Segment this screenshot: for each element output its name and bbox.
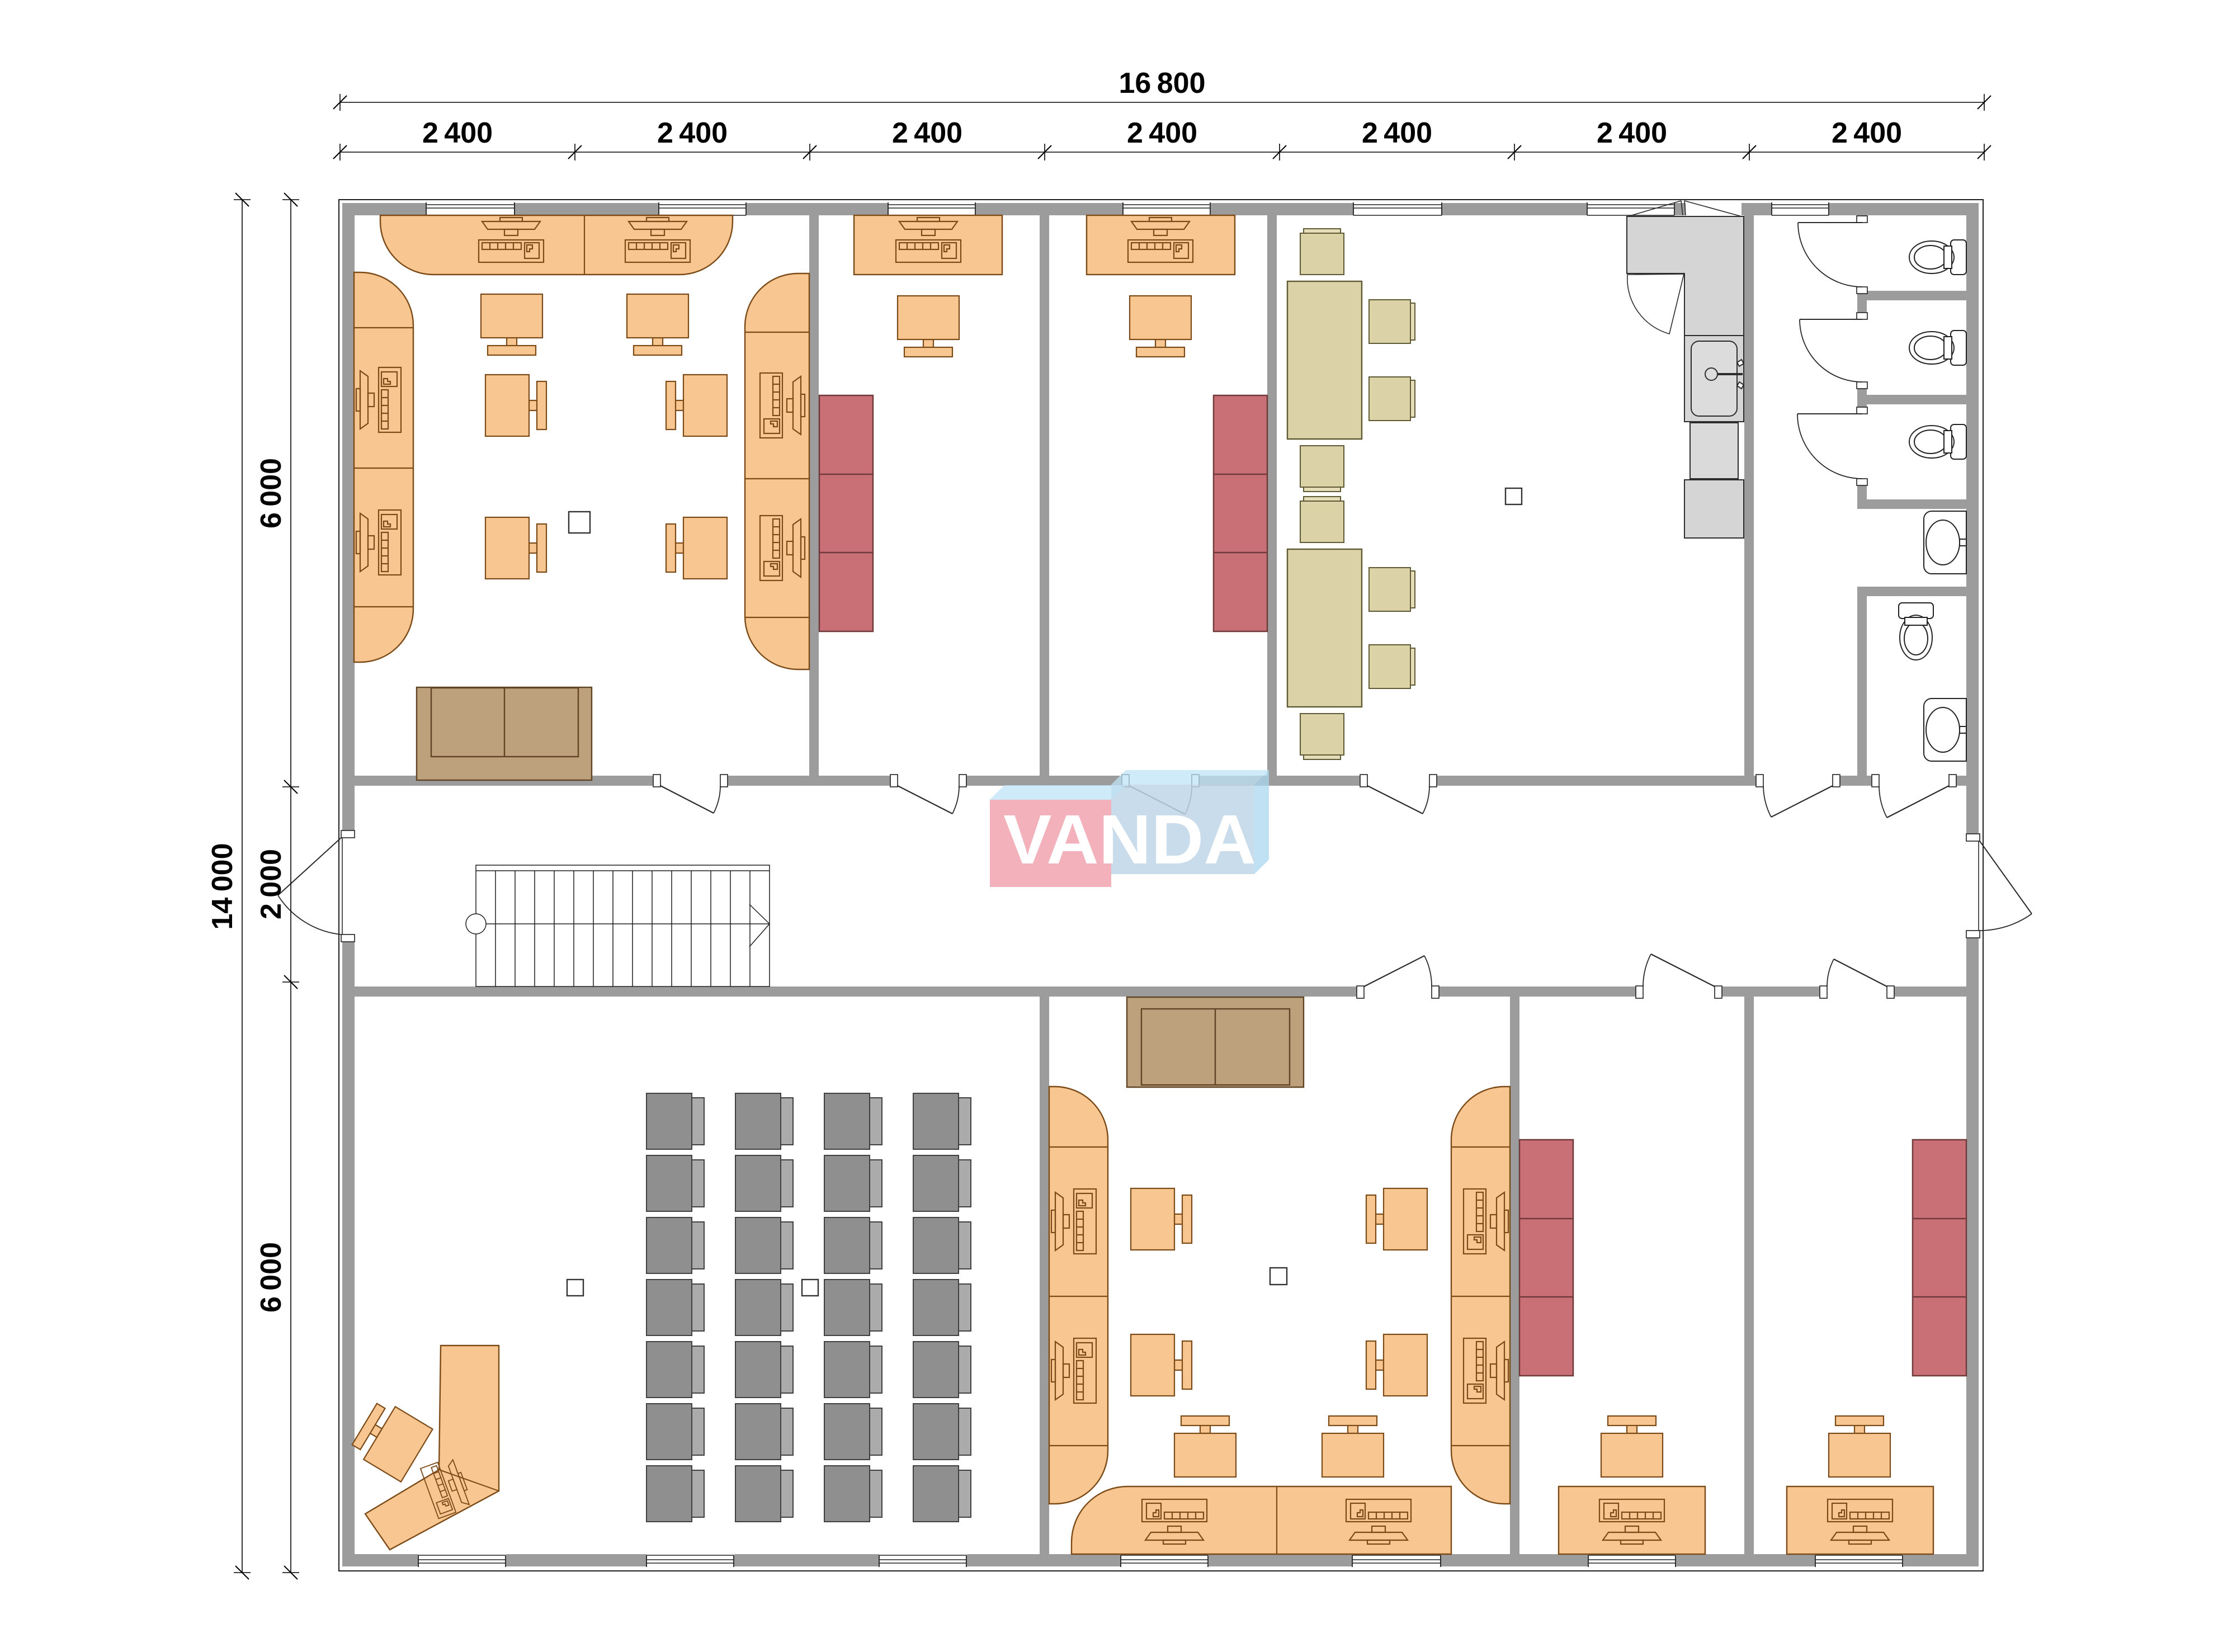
svg-text:16 800: 16 800 xyxy=(1118,67,1205,100)
svg-text:VANDA: VANDA xyxy=(1003,801,1256,879)
svg-text:2 400: 2 400 xyxy=(422,117,493,149)
svg-text:2 400: 2 400 xyxy=(892,117,962,149)
svg-text:2 400: 2 400 xyxy=(1362,117,1432,149)
svg-text:2 000: 2 000 xyxy=(255,849,287,919)
svg-text:2 400: 2 400 xyxy=(657,117,728,149)
svg-text:14 000: 14 000 xyxy=(206,843,239,929)
svg-text:2 400: 2 400 xyxy=(1832,117,1902,149)
svg-text:6 000: 6 000 xyxy=(255,458,287,528)
svg-text:6 000: 6 000 xyxy=(255,1242,287,1313)
svg-text:2 400: 2 400 xyxy=(1127,117,1197,149)
svg-text:2 400: 2 400 xyxy=(1597,117,1667,149)
